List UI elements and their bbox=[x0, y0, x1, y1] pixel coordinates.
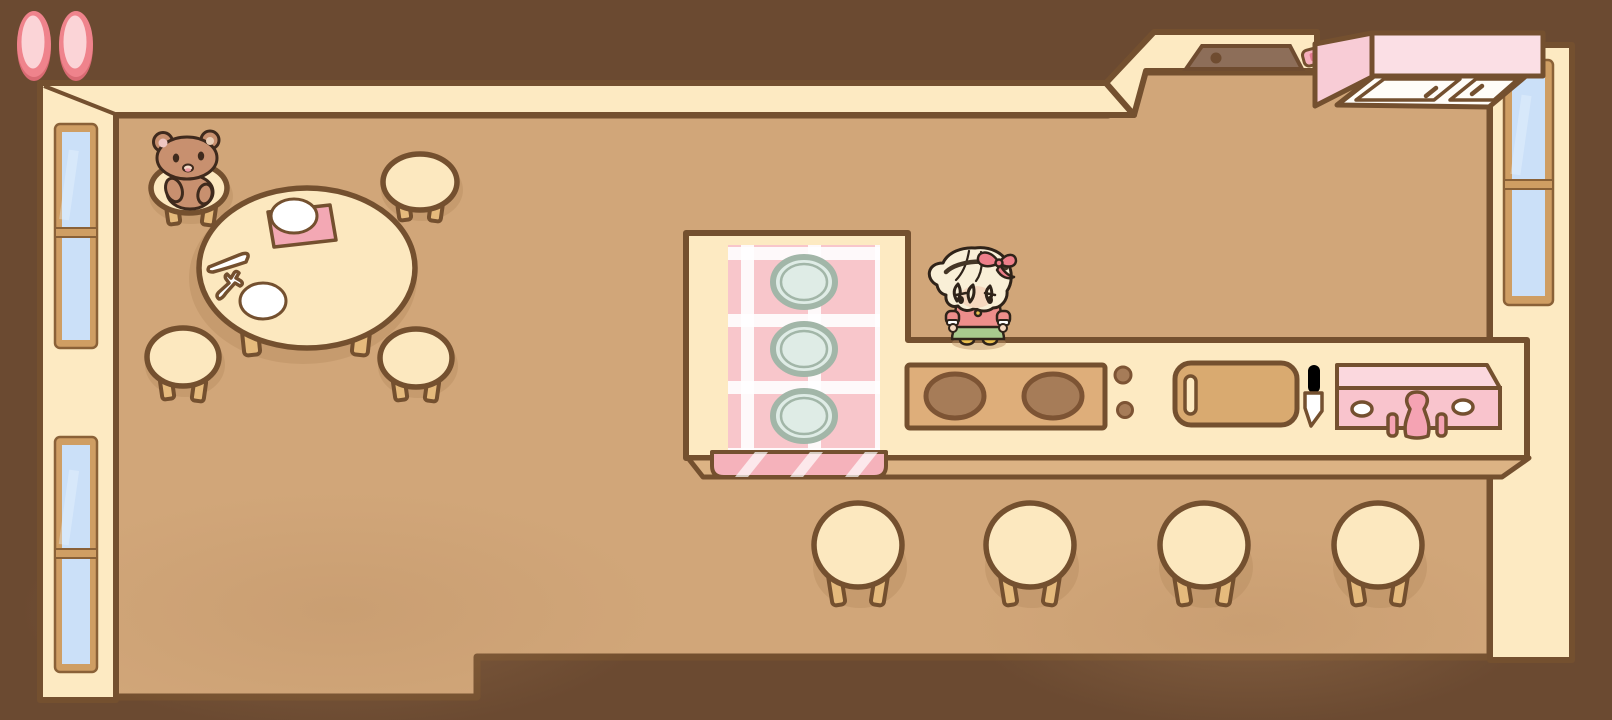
bear-eye-right bbox=[198, 152, 204, 161]
girl-eye-right bbox=[987, 296, 993, 304]
table-plate-1 bbox=[271, 199, 317, 233]
counter-stool-4 bbox=[1333, 503, 1427, 608]
counter-stool-3 bbox=[1159, 503, 1253, 608]
cutting-board bbox=[1175, 363, 1297, 425]
window-left-lower bbox=[55, 437, 97, 672]
stove-burner-right bbox=[1024, 374, 1082, 418]
window-right bbox=[1504, 60, 1553, 305]
stove bbox=[907, 365, 1133, 428]
sink-faucet bbox=[1405, 392, 1429, 438]
game-viewport[interactable] bbox=[0, 0, 1612, 720]
sink-handle-right bbox=[1437, 414, 1446, 436]
window-left-upper bbox=[55, 124, 97, 348]
sink-soap-right bbox=[1453, 400, 1473, 414]
counter-stool-1 bbox=[813, 503, 907, 608]
cabinet-front bbox=[1372, 33, 1543, 76]
stove-knob-bottom bbox=[1118, 403, 1133, 418]
tablecloth-flap bbox=[712, 452, 886, 477]
buffet-plate-1 bbox=[773, 257, 835, 307]
dining-table bbox=[189, 188, 417, 364]
table-plate-2 bbox=[240, 283, 286, 319]
counter-stool-2 bbox=[985, 503, 1079, 608]
girl-hand-right bbox=[999, 324, 1007, 332]
dining-stool-top-right bbox=[381, 154, 463, 222]
buffet-plate-2 bbox=[773, 324, 835, 374]
girl-eye-left bbox=[958, 296, 964, 304]
buffet-plate-3 bbox=[773, 391, 835, 441]
stove-knob-top bbox=[1115, 367, 1131, 383]
bear-eye-left bbox=[173, 154, 179, 163]
kitchen-sink bbox=[1337, 365, 1500, 438]
basin-drain bbox=[1211, 53, 1222, 64]
sink-soap-left bbox=[1352, 402, 1372, 416]
game-scene bbox=[0, 0, 1612, 720]
counter-basin bbox=[1186, 46, 1302, 69]
stove-burner-left bbox=[926, 374, 984, 418]
girl-hand-left bbox=[949, 324, 957, 332]
sink-handle-left bbox=[1388, 414, 1397, 436]
